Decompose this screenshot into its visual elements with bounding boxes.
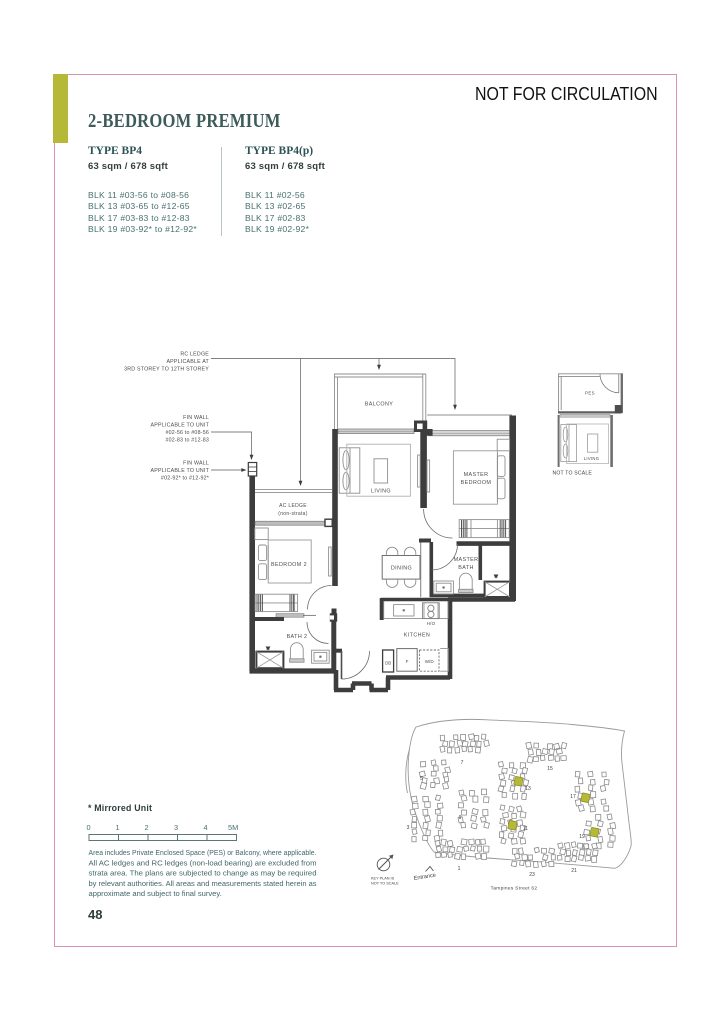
svg-text:BEDROOM: BEDROOM: [461, 480, 492, 486]
svg-text:21: 21: [571, 868, 577, 874]
svg-text:7: 7: [461, 760, 464, 766]
svg-text:15: 15: [547, 766, 553, 772]
svg-text:PES: PES: [585, 391, 595, 396]
svg-text:3: 3: [174, 823, 178, 832]
svg-text:1: 1: [116, 823, 120, 832]
svg-text:Entrance: Entrance: [413, 873, 436, 882]
svg-text:3RD STOREY TO 12TH STOREY: 3RD STOREY TO 12TH STOREY: [124, 367, 209, 373]
svg-text:NOT TO SCALE: NOT TO SCALE: [371, 882, 399, 886]
svg-text:#02-83 to #12-83: #02-83 to #12-83: [165, 438, 209, 444]
svg-text:9: 9: [459, 815, 462, 821]
svg-text:MASTER: MASTER: [454, 557, 479, 563]
svg-text:DINING: DINING: [391, 566, 412, 572]
svg-text:(non-strata): (non-strata): [278, 511, 307, 517]
svg-text:BATH: BATH: [458, 565, 474, 571]
svg-text:NOT TO SCALE: NOT TO SCALE: [553, 471, 593, 477]
svg-text:KITCHEN: KITCHEN: [404, 633, 430, 639]
svg-text:BEDROOM 2: BEDROOM 2: [271, 562, 307, 568]
svg-text:3: 3: [407, 825, 410, 831]
svg-text:BALCONY: BALCONY: [365, 402, 394, 408]
svg-text:Tampines Street 62: Tampines Street 62: [491, 886, 538, 892]
svg-text:APPLICABLE TO UNIT: APPLICABLE TO UNIT: [151, 468, 210, 474]
svg-text:0: 0: [87, 823, 91, 832]
svg-text:FIN WALL: FIN WALL: [183, 461, 209, 467]
svg-text:23: 23: [529, 872, 535, 878]
svg-text:BATH 2: BATH 2: [287, 634, 308, 640]
svg-text:11: 11: [523, 826, 528, 832]
svg-text:LIVING: LIVING: [584, 456, 600, 461]
svg-text:approximate and subject to fin: approximate and subject to final survey.: [89, 889, 222, 898]
svg-text:19: 19: [579, 834, 585, 840]
svg-text:FIN WALL: FIN WALL: [183, 415, 209, 421]
svg-text:DB: DB: [385, 661, 391, 666]
svg-text:KEY PLAN IS: KEY PLAN IS: [371, 877, 395, 881]
svg-text:Area includes Private Enclosed: Area includes Private Enclosed Space (PE…: [89, 848, 317, 857]
svg-text:APPLICABLE TO UNIT: APPLICABLE TO UNIT: [151, 423, 210, 429]
svg-text:W/D: W/D: [425, 659, 435, 664]
svg-text:13: 13: [525, 786, 531, 792]
svg-text:2: 2: [145, 823, 149, 832]
svg-text:strata area. The plans are sub: strata area. The plans are subjected to …: [89, 869, 317, 878]
svg-text:H/O: H/O: [427, 621, 436, 626]
svg-text:F: F: [406, 659, 409, 664]
svg-text:#02-92* to #12-92*: #02-92* to #12-92*: [161, 476, 209, 482]
svg-text:RC LEDGE: RC LEDGE: [180, 352, 209, 358]
svg-text:1: 1: [458, 866, 461, 872]
svg-text:5: 5: [420, 776, 423, 782]
svg-text:LIVING: LIVING: [371, 489, 391, 495]
svg-text:5M: 5M: [228, 823, 238, 832]
svg-text:by relevant authorities. All a: by relevant authorities. All areas and m…: [89, 879, 317, 888]
svg-text:All AC ledges and RC ledges (n: All AC ledges and RC ledges (non-load be…: [89, 858, 317, 867]
svg-text:17: 17: [570, 794, 576, 800]
svg-text:#02-56 to #08-56: #02-56 to #08-56: [165, 430, 209, 436]
svg-text:APPLICABLE AT: APPLICABLE AT: [166, 359, 209, 365]
svg-text:MASTER: MASTER: [464, 472, 489, 478]
svg-text:4: 4: [204, 823, 208, 832]
svg-text:AC LEDGE: AC LEDGE: [279, 503, 307, 509]
